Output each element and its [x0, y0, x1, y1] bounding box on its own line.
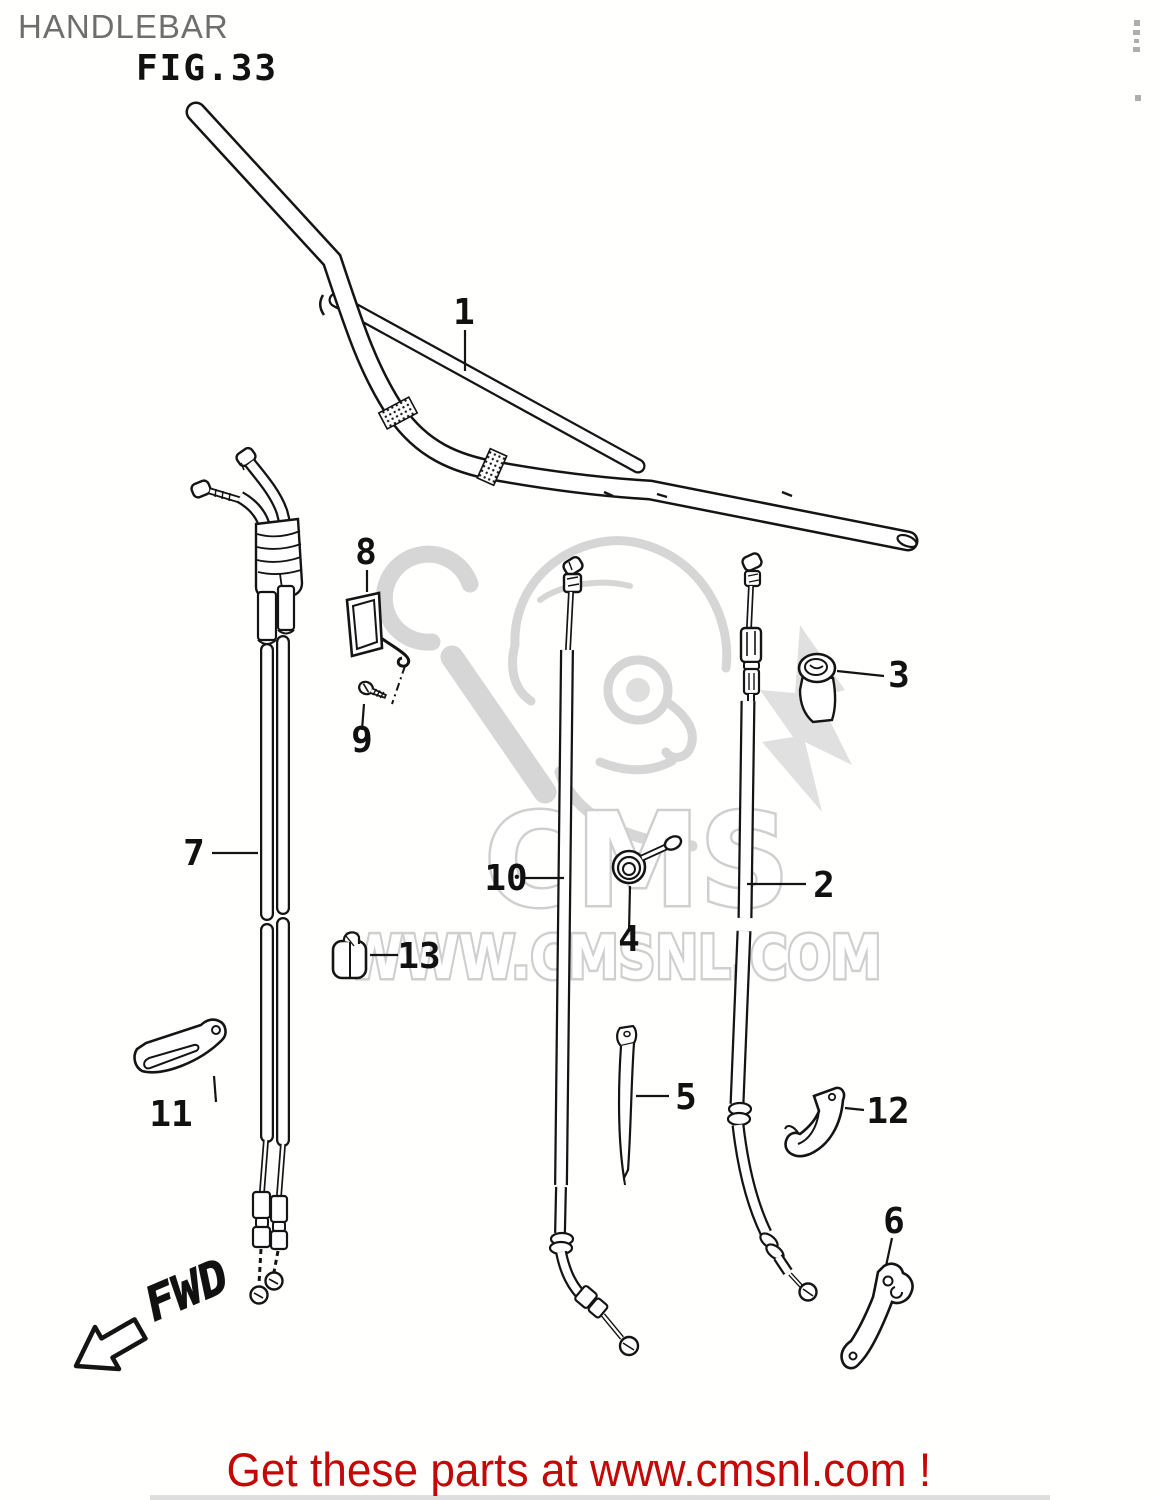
- fwd-label: FWD: [137, 1249, 237, 1333]
- part-label-6[interactable]: 6: [883, 1201, 905, 1242]
- strap-drawing: [617, 1026, 636, 1185]
- part-label-10[interactable]: 10: [484, 858, 527, 899]
- lever-11-drawing: [135, 1020, 226, 1073]
- part-label-4[interactable]: 4: [618, 919, 640, 960]
- part-label-8[interactable]: 8: [355, 532, 377, 573]
- scan-specks: [1133, 20, 1141, 101]
- part-label-13[interactable]: 13: [397, 936, 440, 977]
- cable-guide-drawing: [785, 1088, 844, 1156]
- part-label-2[interactable]: 2: [813, 865, 835, 906]
- part-label-3[interactable]: 3: [888, 655, 910, 696]
- fwd-arrow: [76, 1319, 146, 1369]
- part-label-12[interactable]: 12: [866, 1091, 909, 1132]
- part-label-9[interactable]: 9: [351, 720, 373, 761]
- parts-fiche-page: HANDLEBAR FIG.33: [0, 0, 1157, 1500]
- cms-watermark: CMS WWW.CMSNL.COM: [150, 20, 1141, 1500]
- throttle-cables-drawing: [190, 446, 302, 1303]
- cap-drawing: [799, 654, 835, 722]
- screw-drawing: [357, 680, 387, 702]
- part-label-5[interactable]: 5: [675, 1077, 697, 1118]
- promo-banner[interactable]: Get these parts at www.cmsnl.com !: [0, 1442, 1157, 1497]
- lever-6-drawing: [842, 1264, 913, 1368]
- cable-clamp-drawing: [347, 593, 409, 704]
- part-label-7[interactable]: 7: [183, 833, 205, 874]
- handlebar-drawing: [196, 112, 918, 549]
- part-label-1[interactable]: 1: [453, 292, 475, 333]
- promo-link-text: Get these parts at www.cmsnl.com !: [226, 1442, 931, 1497]
- part-label-11[interactable]: 11: [149, 1094, 192, 1135]
- parts-diagram: CMS WWW.CMSNL.COM: [0, 0, 1157, 1500]
